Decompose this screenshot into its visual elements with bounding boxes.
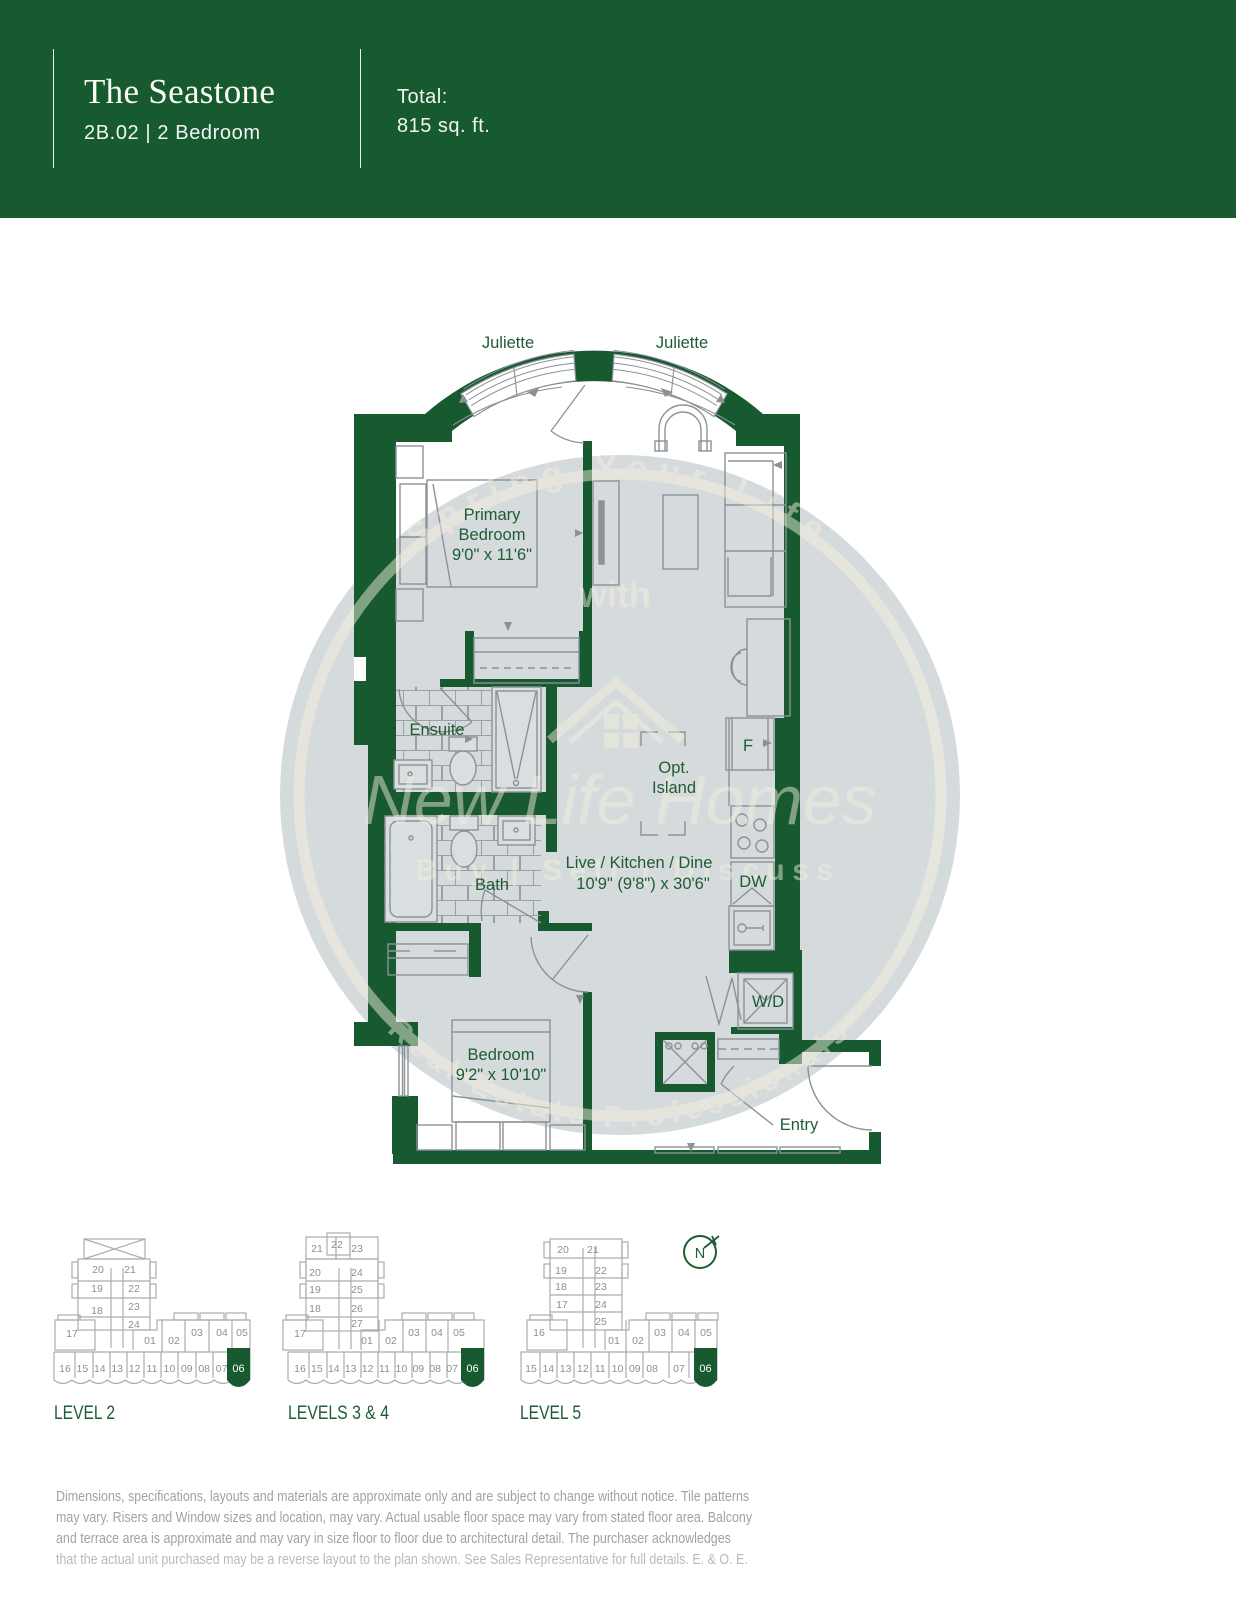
svg-text:01: 01 [361,1335,373,1347]
svg-text:LEVEL 5: LEVEL 5 [520,1403,581,1424]
svg-text:04: 04 [678,1327,690,1339]
svg-text:04: 04 [216,1327,228,1339]
svg-text:03: 03 [654,1327,666,1339]
svg-text:02: 02 [632,1335,644,1347]
svg-text:25: 25 [351,1284,363,1296]
svg-text:19: 19 [555,1265,567,1277]
svg-text:09: 09 [629,1363,641,1375]
svg-text:New Life Homes: New Life Homes [363,761,877,839]
svg-text:Island: Island [652,779,696,797]
svg-text:LEVELS 3 & 4: LEVELS 3 & 4 [288,1403,389,1424]
svg-text:26: 26 [351,1303,363,1315]
svg-text:19: 19 [91,1283,103,1295]
svg-text:18: 18 [309,1303,321,1315]
svg-text:27: 27 [351,1318,363,1330]
svg-text:24: 24 [128,1319,140,1331]
svg-text:09: 09 [412,1363,424,1375]
svg-text:9'2" x 10'10": 9'2" x 10'10" [456,1066,547,1084]
svg-text:23: 23 [351,1243,363,1255]
svg-text:07: 07 [673,1363,685,1375]
svg-text:N: N [695,1246,705,1262]
svg-text:14: 14 [94,1363,106,1375]
svg-text:13: 13 [345,1363,357,1375]
svg-text:20: 20 [92,1264,104,1276]
svg-text:17: 17 [556,1299,568,1311]
svg-text:14: 14 [542,1363,554,1375]
svg-text:25: 25 [595,1316,607,1328]
svg-text:16: 16 [533,1327,545,1339]
svg-text:12: 12 [362,1363,374,1375]
svg-text:02: 02 [168,1335,180,1347]
svg-text:15: 15 [525,1363,537,1375]
svg-text:20: 20 [309,1267,321,1279]
svg-text:18: 18 [555,1281,567,1293]
svg-text:08: 08 [429,1363,441,1375]
svg-text:LEVEL 2: LEVEL 2 [54,1403,115,1424]
svg-text:24: 24 [351,1267,363,1279]
svg-text:05: 05 [700,1327,712,1339]
svg-text:06: 06 [466,1363,478,1375]
svg-text:DW: DW [739,873,767,891]
svg-text:24: 24 [595,1299,607,1311]
svg-text:04: 04 [431,1327,443,1339]
svg-text:13: 13 [111,1363,123,1375]
svg-text:12: 12 [577,1363,589,1375]
svg-text:10: 10 [612,1363,624,1375]
svg-text:11: 11 [379,1363,390,1375]
svg-text:21: 21 [124,1264,136,1276]
svg-text:19: 19 [309,1284,321,1296]
svg-text:10: 10 [396,1363,408,1375]
svg-text:02: 02 [385,1335,397,1347]
svg-text:22: 22 [331,1239,343,1251]
svg-text:Live / Kitchen / Dine: Live / Kitchen / Dine [566,854,713,872]
svg-text:05: 05 [453,1327,465,1339]
svg-text:Opt.: Opt. [658,759,689,777]
svg-text:16: 16 [294,1363,306,1375]
svg-text:06: 06 [699,1363,711,1375]
svg-text:11: 11 [595,1363,606,1375]
svg-text:01: 01 [608,1335,620,1347]
svg-text:07: 07 [446,1363,458,1375]
svg-text:06: 06 [232,1363,244,1375]
svg-text:17: 17 [294,1328,306,1340]
svg-text:22: 22 [128,1283,140,1295]
svg-text:Entry: Entry [780,1116,819,1134]
svg-text:Bath: Bath [475,876,509,894]
svg-text:01: 01 [144,1335,156,1347]
svg-text:11: 11 [147,1363,158,1375]
svg-text:09: 09 [181,1363,193,1375]
svg-text:08: 08 [198,1363,210,1375]
svg-text:03: 03 [191,1327,203,1339]
svg-text:F: F [743,737,753,755]
svg-text:08: 08 [646,1363,658,1375]
svg-text:10: 10 [164,1363,176,1375]
svg-text:23: 23 [128,1301,140,1313]
svg-text:23: 23 [595,1281,607,1293]
svg-text:with: with [578,574,651,615]
svg-text:15: 15 [311,1363,323,1375]
svg-text:21: 21 [311,1243,323,1255]
svg-text:10'9" (9'8") x 30'6": 10'9" (9'8") x 30'6" [576,875,710,893]
svg-text:17: 17 [66,1328,78,1340]
svg-text:9'0" x 11'6": 9'0" x 11'6" [452,546,532,564]
svg-text:Juliette: Juliette [482,334,534,352]
svg-text:Bedroom: Bedroom [468,1046,535,1064]
svg-text:Juliette: Juliette [656,334,708,352]
svg-text:21: 21 [587,1244,599,1256]
svg-text:18: 18 [91,1305,103,1317]
svg-text:07: 07 [216,1363,228,1375]
svg-text:Primary: Primary [464,506,522,524]
svg-text:Ensuite: Ensuite [409,721,464,739]
svg-text:14: 14 [328,1363,340,1375]
svg-text:12: 12 [129,1363,141,1375]
svg-text:Bedroom: Bedroom [459,526,526,544]
svg-text:20: 20 [557,1244,569,1256]
svg-text:03: 03 [408,1327,420,1339]
svg-text:W/D: W/D [752,993,784,1011]
svg-text:22: 22 [595,1265,607,1277]
svg-text:05: 05 [236,1327,248,1339]
svg-text:16: 16 [59,1363,71,1375]
svg-text:13: 13 [560,1363,572,1375]
svg-text:15: 15 [77,1363,89,1375]
